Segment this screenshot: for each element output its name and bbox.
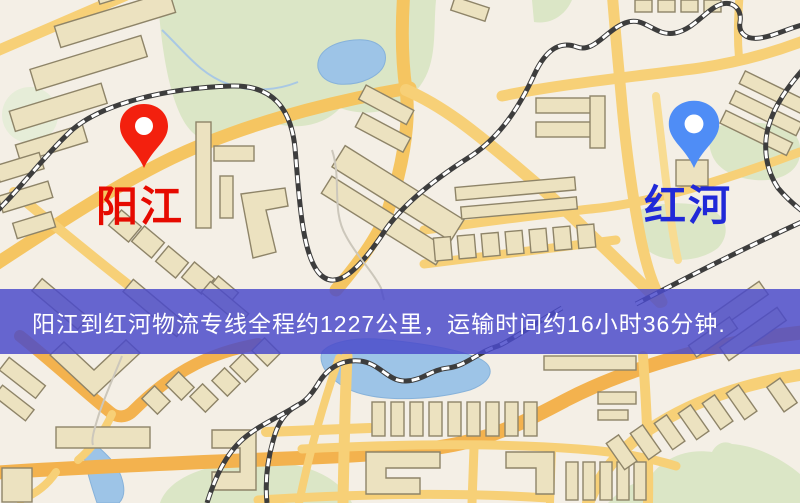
destination-pin-hole xyxy=(685,114,704,133)
origin-pin-hole xyxy=(135,117,153,135)
route-info-banner: 阳江到红河物流专线全程约1227公里，运输时间约16小时36分钟. xyxy=(0,289,800,354)
route-info-text: 阳江到红河物流专线全程约1227公里，运输时间约16小时36分钟. xyxy=(0,305,726,339)
destination-city-label: 红河 xyxy=(644,181,732,230)
map-canvas: 阳江 红河 xyxy=(0,0,800,503)
map[interactable]: 阳江 红河 阳江到红河物流专线全程约1227公里，运输时间约16小时36分钟. xyxy=(0,0,800,503)
origin-city-label: 阳江 xyxy=(96,182,184,231)
